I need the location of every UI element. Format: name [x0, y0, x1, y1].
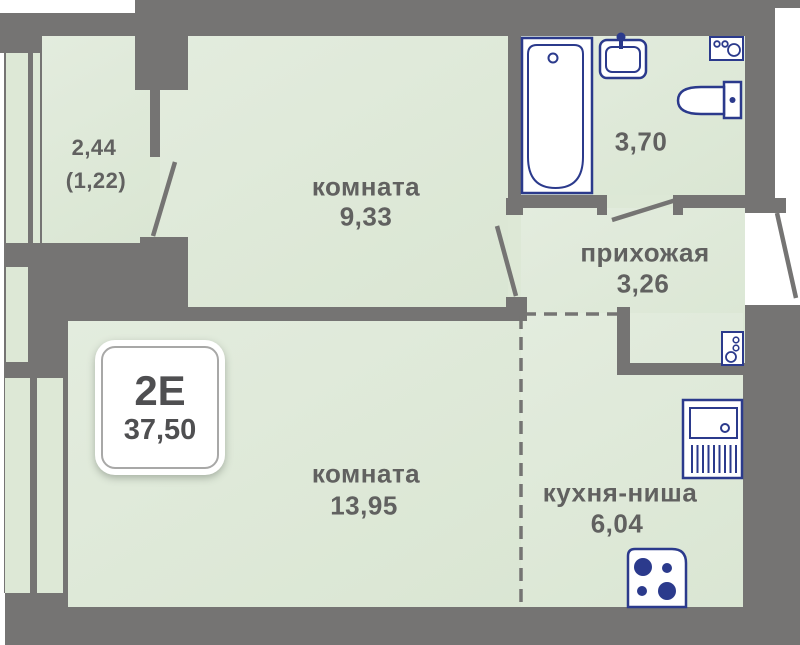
bath-sink-icon	[600, 33, 646, 79]
apartment-type-badge: 2Е 37,50	[95, 340, 225, 475]
bathroom-area-label: 3,70	[615, 127, 668, 158]
kitchen-area-label: 6,04	[591, 509, 644, 540]
room-1-area-label: 9,33	[340, 202, 393, 233]
balcony-reduced-label: (1,22)	[66, 168, 126, 194]
room-2-name-label: комната	[312, 459, 420, 490]
washing-machine-icon	[710, 37, 743, 60]
bathtub-icon	[522, 38, 592, 193]
hallway-name-label: прихожая	[580, 238, 709, 269]
badge-type: 2Е	[134, 369, 185, 413]
bathroom-door-leaf	[612, 200, 676, 220]
room-2-area-label: 13,95	[330, 491, 398, 522]
toilet-icon	[678, 82, 741, 118]
kitchen-sink-icon	[683, 400, 742, 478]
room1-door-leaf	[497, 226, 516, 296]
water-heater-icon	[722, 332, 743, 365]
floor-plan: 2,44 (1,22) комната 9,33 3,70 прихожая 3…	[0, 0, 800, 645]
badge-total-area: 37,50	[124, 413, 197, 447]
hallway-area-label: 3,26	[617, 269, 670, 300]
entrance-door-leaf	[777, 213, 796, 298]
room-1-name-label: комната	[312, 172, 420, 203]
balcony-area-label: 2,44	[72, 135, 117, 161]
kitchen-name-label: кухня-ниша	[543, 478, 698, 509]
balcony-door-leaf	[153, 162, 175, 236]
stove-icon	[628, 549, 686, 607]
fixtures-layer	[0, 0, 800, 645]
